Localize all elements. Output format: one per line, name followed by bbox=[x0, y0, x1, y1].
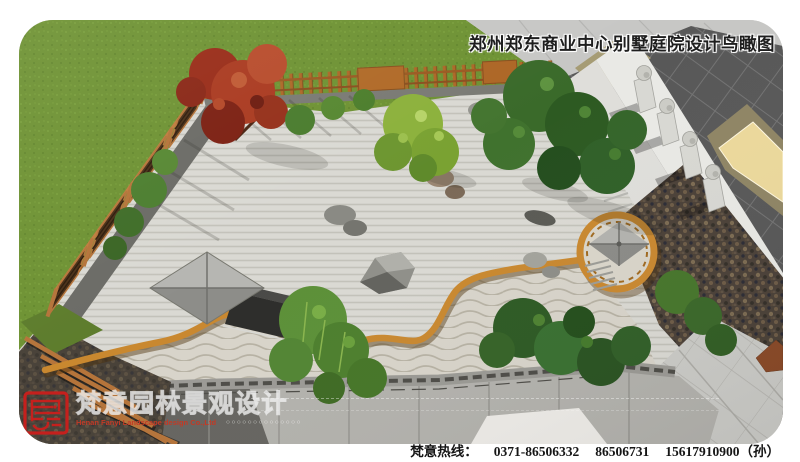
deco-dots: ○○○○○○○○○○○○○○ bbox=[226, 419, 302, 426]
garden-scene bbox=[19, 20, 783, 444]
watermark-dash-line bbox=[251, 398, 719, 399]
rendering-image: 郑州郑东商业中心别墅庭院设计鸟瞰图 梵意园林景观设计 bbox=[19, 20, 783, 444]
hotline-phone-3: 15617910900（孙） bbox=[665, 444, 780, 459]
watermark-dash-line-2 bbox=[251, 410, 719, 411]
hotline-phone-1: 0371-86506332 bbox=[494, 444, 580, 459]
page-title: 郑州郑东商业中心别墅庭院设计鸟瞰图 bbox=[469, 31, 775, 56]
hotline-phone-2: 86506731 bbox=[595, 444, 649, 459]
company-name-en: Henan Fanyi Landscape design Co.,Ltd bbox=[76, 418, 216, 427]
hotline-label: 梵意热线： bbox=[410, 444, 478, 459]
lighting-overlay bbox=[19, 20, 783, 444]
brand-watermark: 梵意园林景观设计 Henan Fanyi Landscape design Co… bbox=[23, 391, 302, 435]
design-board: 郑州郑东商业中心别墅庭院设计鸟瞰图 梵意园林景观设计 bbox=[0, 0, 800, 462]
contact-footer: 梵意热线：0371-865063328650673115617910900（孙） bbox=[0, 443, 780, 462]
fanyi-seal-icon bbox=[23, 391, 69, 435]
company-name-cn: 梵意园林景观设计 bbox=[76, 391, 302, 417]
